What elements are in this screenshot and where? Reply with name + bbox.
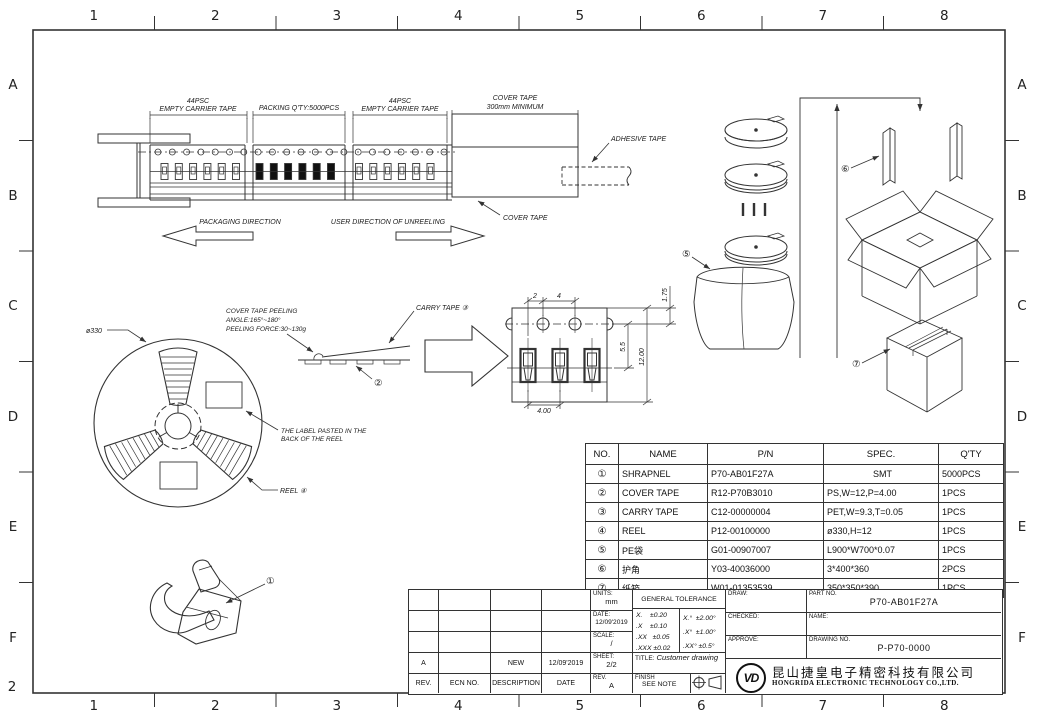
svg-text:THE LABEL PASTED IN THE: THE LABEL PASTED IN THE: [281, 428, 367, 435]
zone-label: 1: [89, 8, 98, 24]
zone-label: 2: [211, 698, 220, 714]
table-row: ②COVER TAPER12-P70B3010PS,W=12,P=4.001PC…: [586, 484, 1004, 503]
svg-text:1.75: 1.75: [662, 288, 669, 302]
svg-text:2: 2: [532, 293, 537, 300]
open-box: [846, 191, 993, 324]
sheet-cell: SHEET:2/2: [591, 653, 633, 674]
reel-diagram: [94, 311, 414, 507]
rev-entry-date: 12/09'2019: [542, 653, 591, 674]
rev-header-ecn: ECN NO.: [439, 674, 491, 693]
svg-text:COVER TAPE: COVER TAPE: [503, 215, 548, 222]
zone-label: C: [8, 298, 17, 314]
title-cell: TITLE: Customer drawing: [633, 653, 726, 674]
zone-label: B: [8, 188, 17, 204]
svg-text:EMPTY CARRIER TAPE: EMPTY CARRIER TAPE: [361, 106, 438, 113]
svg-text:ANGLE:165°~180°: ANGLE:165°~180°: [225, 316, 281, 324]
tolerance-linear: X. ±0.20.X ±0.10.XX ±0.05.XXX ±0.02: [633, 609, 680, 653]
closed-box: [887, 320, 962, 412]
zone-label: 2: [211, 8, 220, 24]
zone-label: B: [1017, 188, 1026, 204]
col-name: NAME: [619, 444, 708, 465]
drawing-sheet: 44PSC EMPTY CARRIER TAPE PACKING Q'TY:50…: [0, 0, 1038, 723]
pe-bag: [694, 267, 794, 349]
corner-protectors: [883, 123, 962, 185]
rev-entry-desc: NEW: [491, 653, 542, 674]
table-row: ①SHRAPNELP70-AB01F27ASMT5000PCS: [586, 465, 1004, 484]
pocket-dimension-view: [505, 286, 676, 409]
table-row: ④REELP12-00100000ø330,H=121PCS: [586, 522, 1004, 541]
svg-text:②: ②: [374, 378, 383, 389]
finish-cell: FINISH SEE NOTE: [633, 674, 691, 693]
table-row: ③CARRY TAPEC12-00000004PET,W=9.3,T=0.051…: [586, 503, 1004, 522]
projection-cell: [691, 674, 726, 693]
rev-header-date: DATE: [542, 674, 591, 693]
zone-label: 4: [454, 698, 463, 714]
svg-text:44PSC: 44PSC: [187, 98, 210, 105]
transfer-arrow-icon: [425, 326, 508, 386]
col-qty: Q'TY: [939, 444, 1004, 465]
zone-label: A: [1017, 77, 1026, 93]
scale-cell: SCALE:/: [591, 632, 633, 653]
corner-label: 2: [8, 679, 17, 695]
rev-cell-value: REV.A: [591, 674, 633, 693]
zone-label: E: [1018, 519, 1027, 535]
zone-label: 6: [697, 698, 706, 714]
zone-label: 6: [697, 8, 706, 24]
zone-label: 4: [454, 8, 463, 24]
zone-label: 8: [940, 8, 949, 24]
svg-text:ADHESIVE TAPE: ADHESIVE TAPE: [610, 136, 666, 143]
svg-text:USER DIRECTION OF UNREELING: USER DIRECTION OF UNREELING: [331, 219, 446, 226]
parts-table: NO. NAME P/N SPEC. Q'TY ①SHRAPNELP70-AB0…: [585, 443, 1004, 598]
table-row: ⑥护角Y03-400360003*400*3602PCS: [586, 560, 1004, 579]
svg-text:4: 4: [557, 293, 561, 300]
zone-label: 3: [332, 698, 341, 714]
shrapnel-view: [150, 560, 265, 644]
parts-table-body: ①SHRAPNELP70-AB01F27ASMT5000PCS②COVER TA…: [586, 465, 1004, 598]
rev-header-rev: REV.: [409, 674, 439, 693]
approve-cell: APPROVE:: [726, 636, 807, 659]
svg-text:300mm MINIMUM: 300mm MINIMUM: [487, 104, 544, 111]
zone-label: F: [1018, 630, 1026, 646]
col-pn: P/N: [708, 444, 824, 465]
svg-text:5.5: 5.5: [620, 342, 627, 352]
svg-text:EMPTY CARRIER TAPE: EMPTY CARRIER TAPE: [159, 106, 236, 113]
zone-label: D: [1017, 409, 1027, 425]
rev-entry-rev: A: [409, 653, 439, 674]
svg-text:CARRY TAPE ③: CARRY TAPE ③: [416, 304, 469, 312]
svg-text:REEL ④: REEL ④: [280, 487, 307, 495]
zone-label: 8: [940, 698, 949, 714]
company-cell: VD 昆山捷皇电子精密科技有限公司 HONGRIDA ELECTRONIC TE…: [726, 659, 1001, 693]
flow-callouts: ⑤ ⑥ ⑦: [682, 164, 861, 370]
svg-text:BACK OF THE REEL: BACK OF THE REEL: [281, 436, 343, 443]
zone-label: A: [8, 77, 17, 93]
drawing-no-cell: DRAWING NO. P-P70-0000: [807, 636, 1001, 659]
svg-text:PACKING Q'TY:5000PCS: PACKING Q'TY:5000PCS: [259, 105, 340, 112]
name-cell: NAME:: [807, 613, 1001, 636]
draw-cell: DRAW:: [726, 590, 807, 613]
zone-label: D: [8, 409, 18, 425]
col-spec: SPEC.: [824, 444, 939, 465]
zone-label: F: [9, 630, 17, 646]
zone-label: 3: [332, 8, 341, 24]
svg-text:44PSC: 44PSC: [389, 98, 412, 105]
zone-label: 7: [818, 698, 827, 714]
rev-header-desc: DESCRIPTION: [491, 674, 542, 693]
svg-text:⑦: ⑦: [852, 359, 861, 370]
svg-text:PACKAGING DIRECTION: PACKAGING DIRECTION: [199, 219, 281, 226]
svg-text:12.00: 12.00: [639, 348, 646, 366]
svg-text:⑥: ⑥: [841, 164, 850, 175]
zone-label: 1: [89, 698, 98, 714]
zone-label: 5: [575, 8, 584, 24]
shrapnel-callout: ①: [266, 576, 275, 587]
zone-label: E: [9, 519, 18, 535]
title-block: A NEW 12/09'2019 REV. ECN NO. DESCRIPTIO…: [408, 589, 1003, 695]
units-cell: UNITS:mm: [591, 590, 633, 611]
zone-label: 7: [818, 8, 827, 24]
reel-labels: ø330 COVER TAPE PEELING ANGLE:165°~180° …: [86, 304, 469, 495]
table-row: ⑤PE袋G01-00907007L900*W700*0.071PCS: [586, 541, 1004, 560]
col-no: NO.: [586, 444, 619, 465]
svg-text:⑤: ⑤: [682, 249, 691, 260]
packing-flow-diagram: [692, 98, 993, 412]
rev-entry-ecn: [439, 653, 491, 674]
zone-label: C: [1017, 298, 1026, 314]
part-no-cell: PART NO. P70-AB01F27A: [807, 590, 1001, 613]
date-cell: DATE:12/09'2019: [591, 611, 633, 632]
checked-cell: CHECKED:: [726, 613, 807, 636]
company-name-en: HONGRIDA ELECTRONIC TECHNOLOGY CO.,LTD.: [772, 679, 959, 687]
rev-cell: [409, 590, 439, 611]
svg-text:PEELING FORCE:30~130g: PEELING FORCE:30~130g: [226, 326, 306, 333]
company-logo: VD: [736, 663, 766, 693]
tolerance-angular: X.° ±2.00°.X° ±1.00°.XX° ±0.5°: [680, 609, 726, 653]
svg-text:COVER TAPE: COVER TAPE: [493, 95, 538, 102]
reel-stack: [725, 116, 787, 265]
parts-table-header: NO. NAME P/N SPEC. Q'TY: [586, 444, 1004, 465]
svg-text:ø330: ø330: [86, 328, 102, 335]
zone-label: 5: [575, 698, 584, 714]
svg-text:COVER TAPE PEELING: COVER TAPE PEELING: [226, 308, 297, 315]
tolerance-title: GENERAL TOLERANCE: [633, 590, 726, 609]
projection-symbol-icon: [691, 674, 724, 691]
svg-text:4.00: 4.00: [537, 408, 551, 415]
